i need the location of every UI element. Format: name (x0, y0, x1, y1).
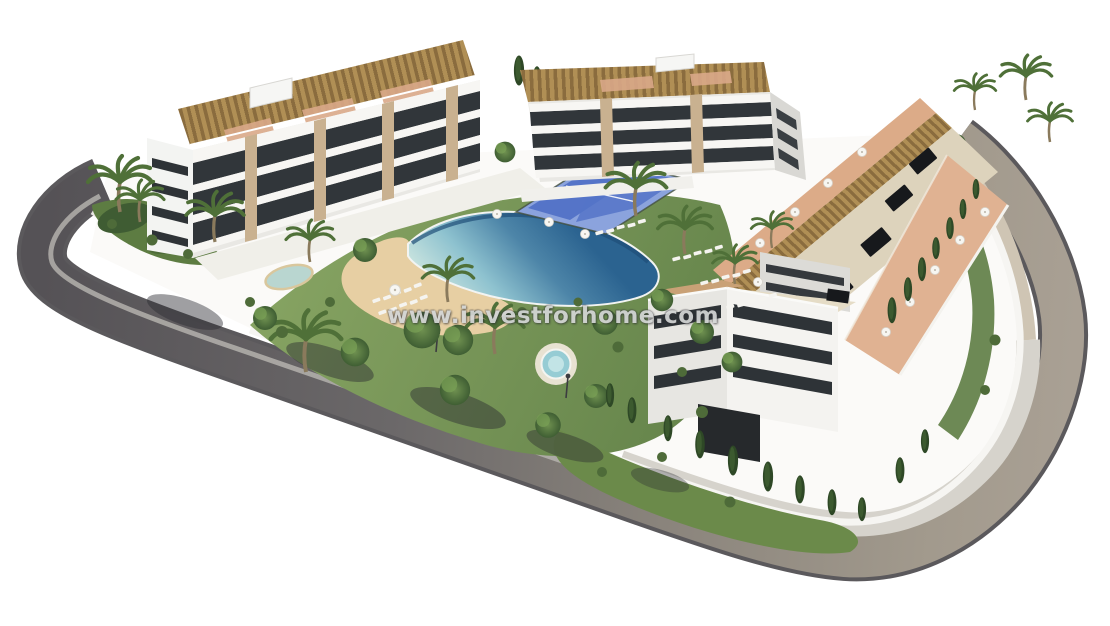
balcony-recesses (530, 102, 774, 170)
spa-pool-center (548, 356, 564, 372)
render-scene (0, 0, 1110, 626)
stone-pillar (690, 94, 704, 173)
stone-pillar (600, 98, 614, 177)
architectural-render: www.investforhome.com (0, 0, 1110, 626)
west-windows (654, 305, 721, 389)
